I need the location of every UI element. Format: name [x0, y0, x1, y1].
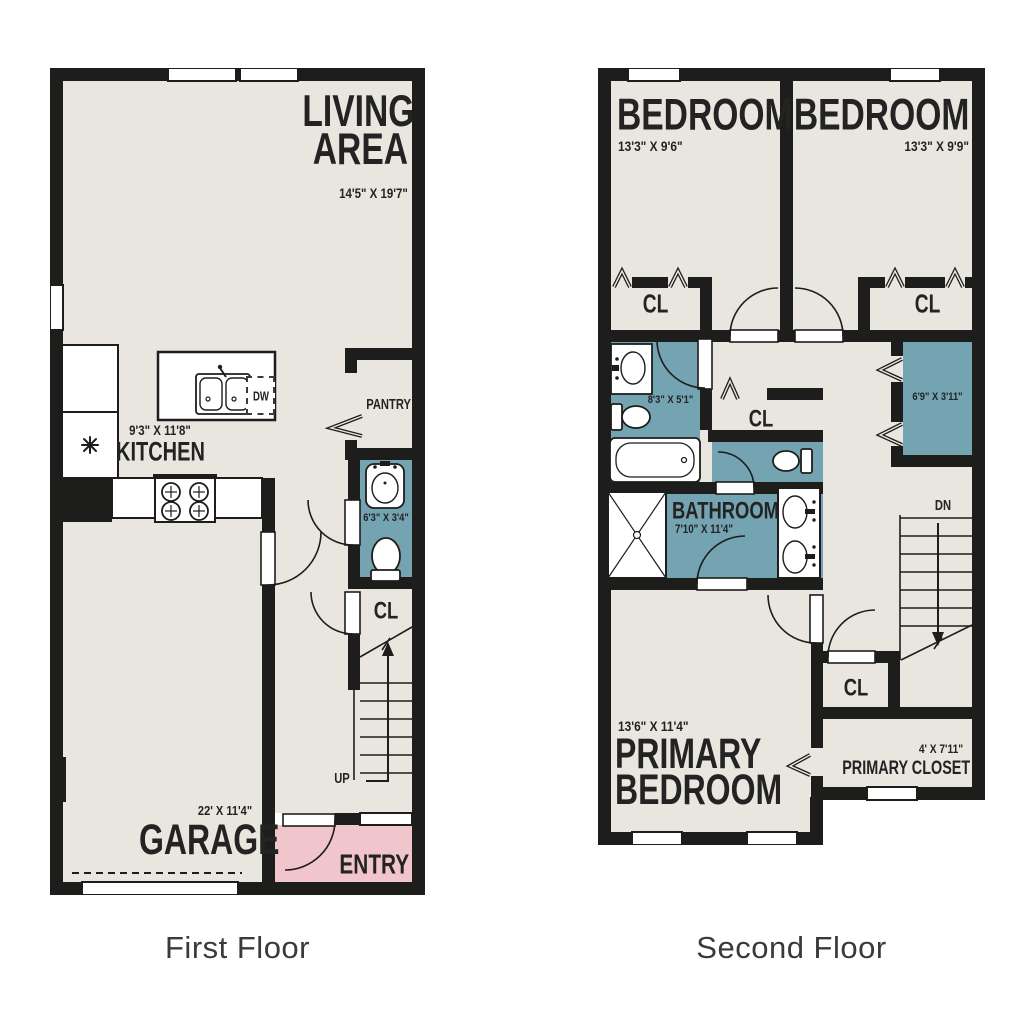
- wall-segment: [778, 330, 795, 342]
- wall-segment: [811, 707, 985, 719]
- wall-segment: [348, 460, 360, 500]
- wall-segment: [598, 68, 985, 81]
- wall-segment: [823, 787, 985, 800]
- wall-segment: [412, 68, 425, 895]
- entry-label: ENTRY: [339, 848, 409, 881]
- hall-bath-dims: 8'3" X 5'1": [630, 394, 711, 406]
- pantry-label: PANTRY: [366, 395, 411, 412]
- wall-segment: [891, 330, 903, 356]
- bedroom1-label: BEDROOM: [617, 89, 792, 140]
- wall-segment: [811, 776, 823, 797]
- wall-segment: [810, 797, 823, 845]
- wall-segment: [965, 277, 972, 288]
- wall-segment: [811, 651, 828, 663]
- wall-segment: [747, 578, 823, 590]
- wall-segment: [905, 277, 945, 288]
- bathroom-dims: 7'10" X 11'4": [653, 524, 755, 536]
- wall-segment: [598, 578, 697, 590]
- primary-closet-dims: 4' X 7'11": [919, 742, 963, 756]
- closet1-label: CL: [620, 290, 691, 320]
- closet3-label: CL: [830, 673, 881, 702]
- hall-closet-label: CL: [741, 404, 781, 433]
- bathroom-label: BATHROOM: [668, 496, 784, 525]
- second-floor-plan: BEDROOM 13'3" X 9'6" BEDROOM 13'3" X 9'9…: [598, 68, 985, 845]
- closet-label: CL: [365, 596, 407, 625]
- wall-segment: [754, 482, 823, 494]
- water-closet: [712, 442, 823, 482]
- dishwasher-box: DW: [246, 376, 275, 415]
- first-floor-plan: LIVING AREA 14'5" X 19'7" PANTRY 6'3" X …: [50, 68, 425, 895]
- wall-segment: [891, 455, 972, 467]
- wall-segment: [598, 68, 611, 845]
- linen-closet-dims: 6'9" X 3'11": [901, 391, 973, 403]
- wall-segment: [53, 478, 112, 522]
- wall-segment: [767, 388, 823, 400]
- exterior-door-frame: [50, 757, 66, 802]
- wall-segment: [700, 277, 712, 330]
- wall-segment: [348, 634, 360, 690]
- wall-segment: [598, 482, 716, 494]
- bedroom1-dims: 13'3" X 9'6": [618, 138, 683, 154]
- first-floor-title: First Floor: [50, 930, 425, 966]
- wall-segment: [262, 478, 275, 532]
- stairs-down-label: DN: [927, 496, 959, 513]
- primary-bedroom-label: PRIMARY BEDROOM: [615, 736, 771, 808]
- bedroom2-label: BEDROOM: [794, 89, 969, 140]
- second-floor-title: Second Floor: [598, 930, 985, 966]
- kitchen-label: KITCHEN: [116, 437, 204, 468]
- wall-segment: [632, 277, 668, 288]
- wall-segment: [972, 68, 985, 800]
- wall-segment: [50, 68, 425, 81]
- garage-dims: 22' X 11'4": [166, 803, 285, 818]
- living-area-dims: 14'5" X 19'7": [339, 186, 408, 201]
- primary-closet-label: PRIMARY CLOSET: [842, 757, 956, 779]
- wall-segment: [598, 832, 823, 845]
- living-area-label: LIVING AREA: [302, 92, 408, 168]
- wall-segment: [348, 448, 412, 460]
- powder-bath-dims: 6'3" X 3'4": [359, 512, 413, 524]
- stairs-up-label: UP: [318, 769, 366, 786]
- hall-bathroom: [611, 342, 700, 482]
- wall-segment: [348, 545, 360, 577]
- wall-segment: [611, 330, 730, 342]
- garage-label: GARAGE: [139, 817, 251, 865]
- wall-segment: [858, 277, 870, 330]
- dishwasher-label: DW: [253, 389, 269, 404]
- bedroom2-dims: 13'3" X 9'9": [904, 138, 969, 154]
- wall-segment: [50, 882, 425, 895]
- kitchen-dims: 9'3" X 11'8": [113, 423, 207, 438]
- wall-segment: [345, 348, 357, 373]
- wall-segment: [843, 330, 972, 342]
- wall-segment: [262, 813, 425, 825]
- wall-segment: [348, 577, 412, 589]
- closet2-label: CL: [892, 290, 963, 320]
